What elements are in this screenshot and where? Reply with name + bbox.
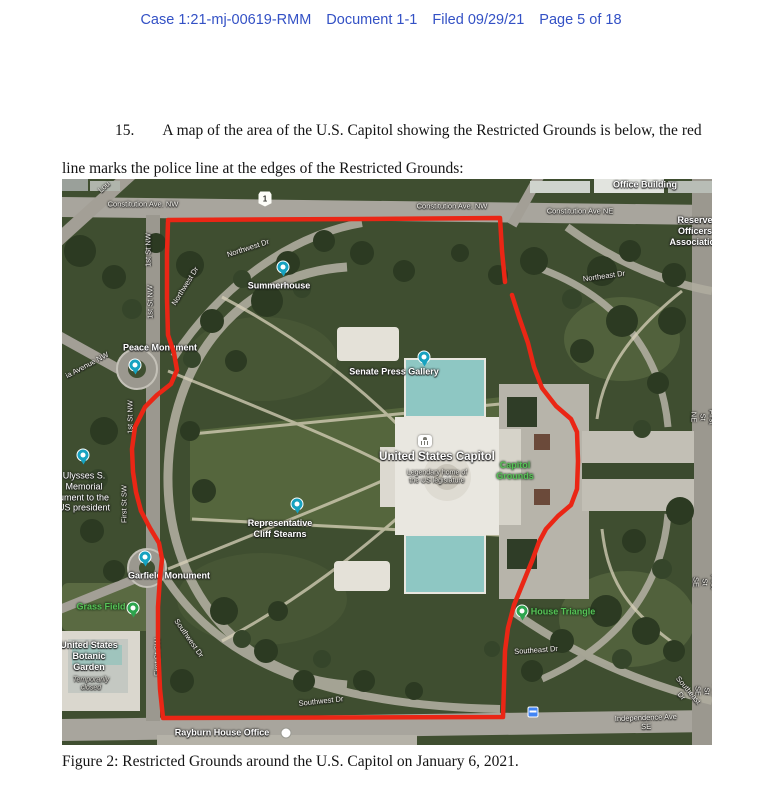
capitol-map-figure: Constitution Ave. NW Constitution Ave. N… — [62, 179, 712, 745]
paragraph-number: 15. — [115, 112, 134, 150]
restricted-grounds-red-line — [62, 179, 712, 745]
paragraph-text: A map of the area of the U.S. Capitol sh… — [62, 122, 702, 177]
filed-date: Filed 09/29/21 — [432, 12, 524, 28]
court-document-page: Case 1:21-mj-00619-RMM Document 1-1 File… — [0, 0, 762, 790]
figure-caption: Figure 2: Restricted Grounds around the … — [62, 753, 519, 771]
document-number: Document 1-1 — [326, 12, 417, 28]
case-header: Case 1:21-mj-00619-RMM Document 1-1 File… — [0, 12, 762, 28]
page-number: Page 5 of 18 — [539, 12, 621, 28]
paragraph-15: 15.A map of the area of the U.S. Capitol… — [62, 112, 714, 188]
case-number: Case 1:21-mj-00619-RMM — [140, 12, 311, 28]
